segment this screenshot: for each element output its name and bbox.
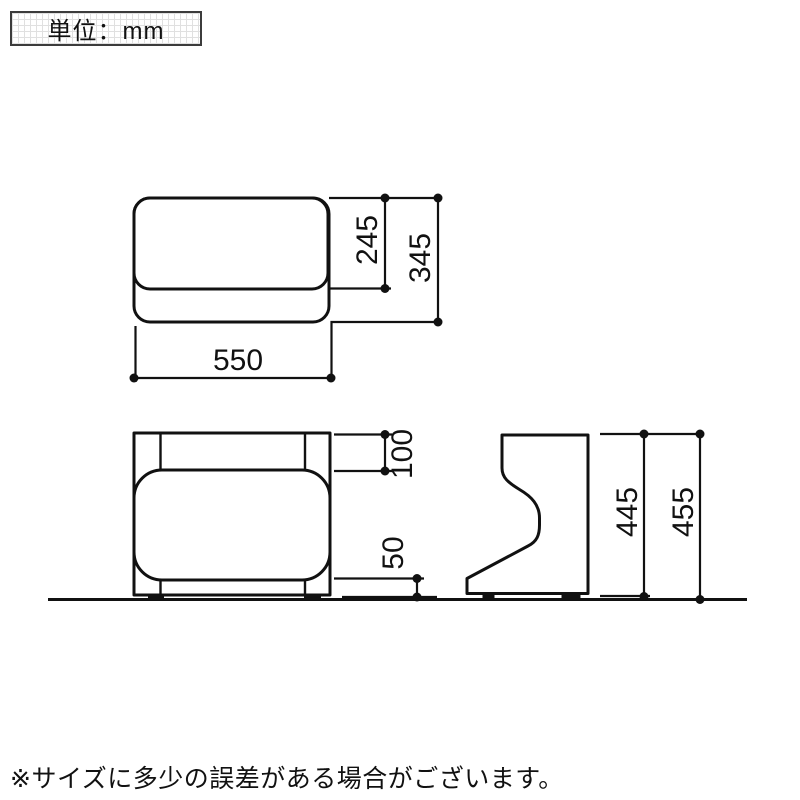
dim-top-frame-height-value: 100 xyxy=(386,429,419,479)
dim-endpoint xyxy=(434,194,443,203)
dim-endpoint xyxy=(640,430,649,439)
dim-endpoint xyxy=(696,430,705,439)
total-depth-extension-line xyxy=(332,322,439,382)
dim-seat-depth: 245 xyxy=(351,194,390,294)
dim-endpoint xyxy=(413,574,422,583)
dim-bottom-clearance: 50 xyxy=(334,536,437,601)
dim-endpoint xyxy=(413,593,422,602)
dim-width-value: 550 xyxy=(213,344,263,377)
dim-total-depth: 345 xyxy=(404,194,443,327)
front-view: 100 50 xyxy=(134,429,437,602)
dim-endpoint xyxy=(381,284,390,293)
top-view: 245 345 550 xyxy=(130,194,443,383)
dim-total-depth-value: 345 xyxy=(404,233,437,283)
side-view: 445 455 xyxy=(467,430,705,605)
dimension-diagram-page: 単位：mm 245 3 xyxy=(0,0,800,800)
front-view-left-foot xyxy=(148,594,164,600)
front-view-right-foot xyxy=(304,594,321,600)
dim-endpoint xyxy=(130,374,139,383)
dim-endpoint xyxy=(640,592,649,601)
dim-total-height: 455 xyxy=(667,430,705,605)
top-view-seat-outline xyxy=(134,198,328,289)
dim-body-height: 445 xyxy=(611,430,649,602)
dim-endpoint xyxy=(381,194,390,203)
size-disclaimer-note: ※サイズに多少の誤差がある場合がございます。 xyxy=(10,759,564,795)
dim-endpoint xyxy=(696,595,705,604)
dim-seat-depth-value: 245 xyxy=(351,215,384,265)
side-view-right-foot xyxy=(562,594,581,600)
dim-bottom-clearance-value: 50 xyxy=(377,536,410,569)
side-view-profile-outline xyxy=(467,435,588,594)
front-view-cushion-outline xyxy=(134,470,330,580)
dim-top-frame-height: 100 xyxy=(334,429,419,479)
dim-endpoint xyxy=(327,374,336,383)
dim-total-height-value: 455 xyxy=(667,487,700,537)
technical-drawing: 245 345 550 xyxy=(0,0,800,800)
dim-body-height-value: 445 xyxy=(611,487,644,537)
dim-width: 550 xyxy=(130,344,336,383)
side-view-left-foot xyxy=(483,594,495,600)
dim-endpoint xyxy=(434,318,443,327)
